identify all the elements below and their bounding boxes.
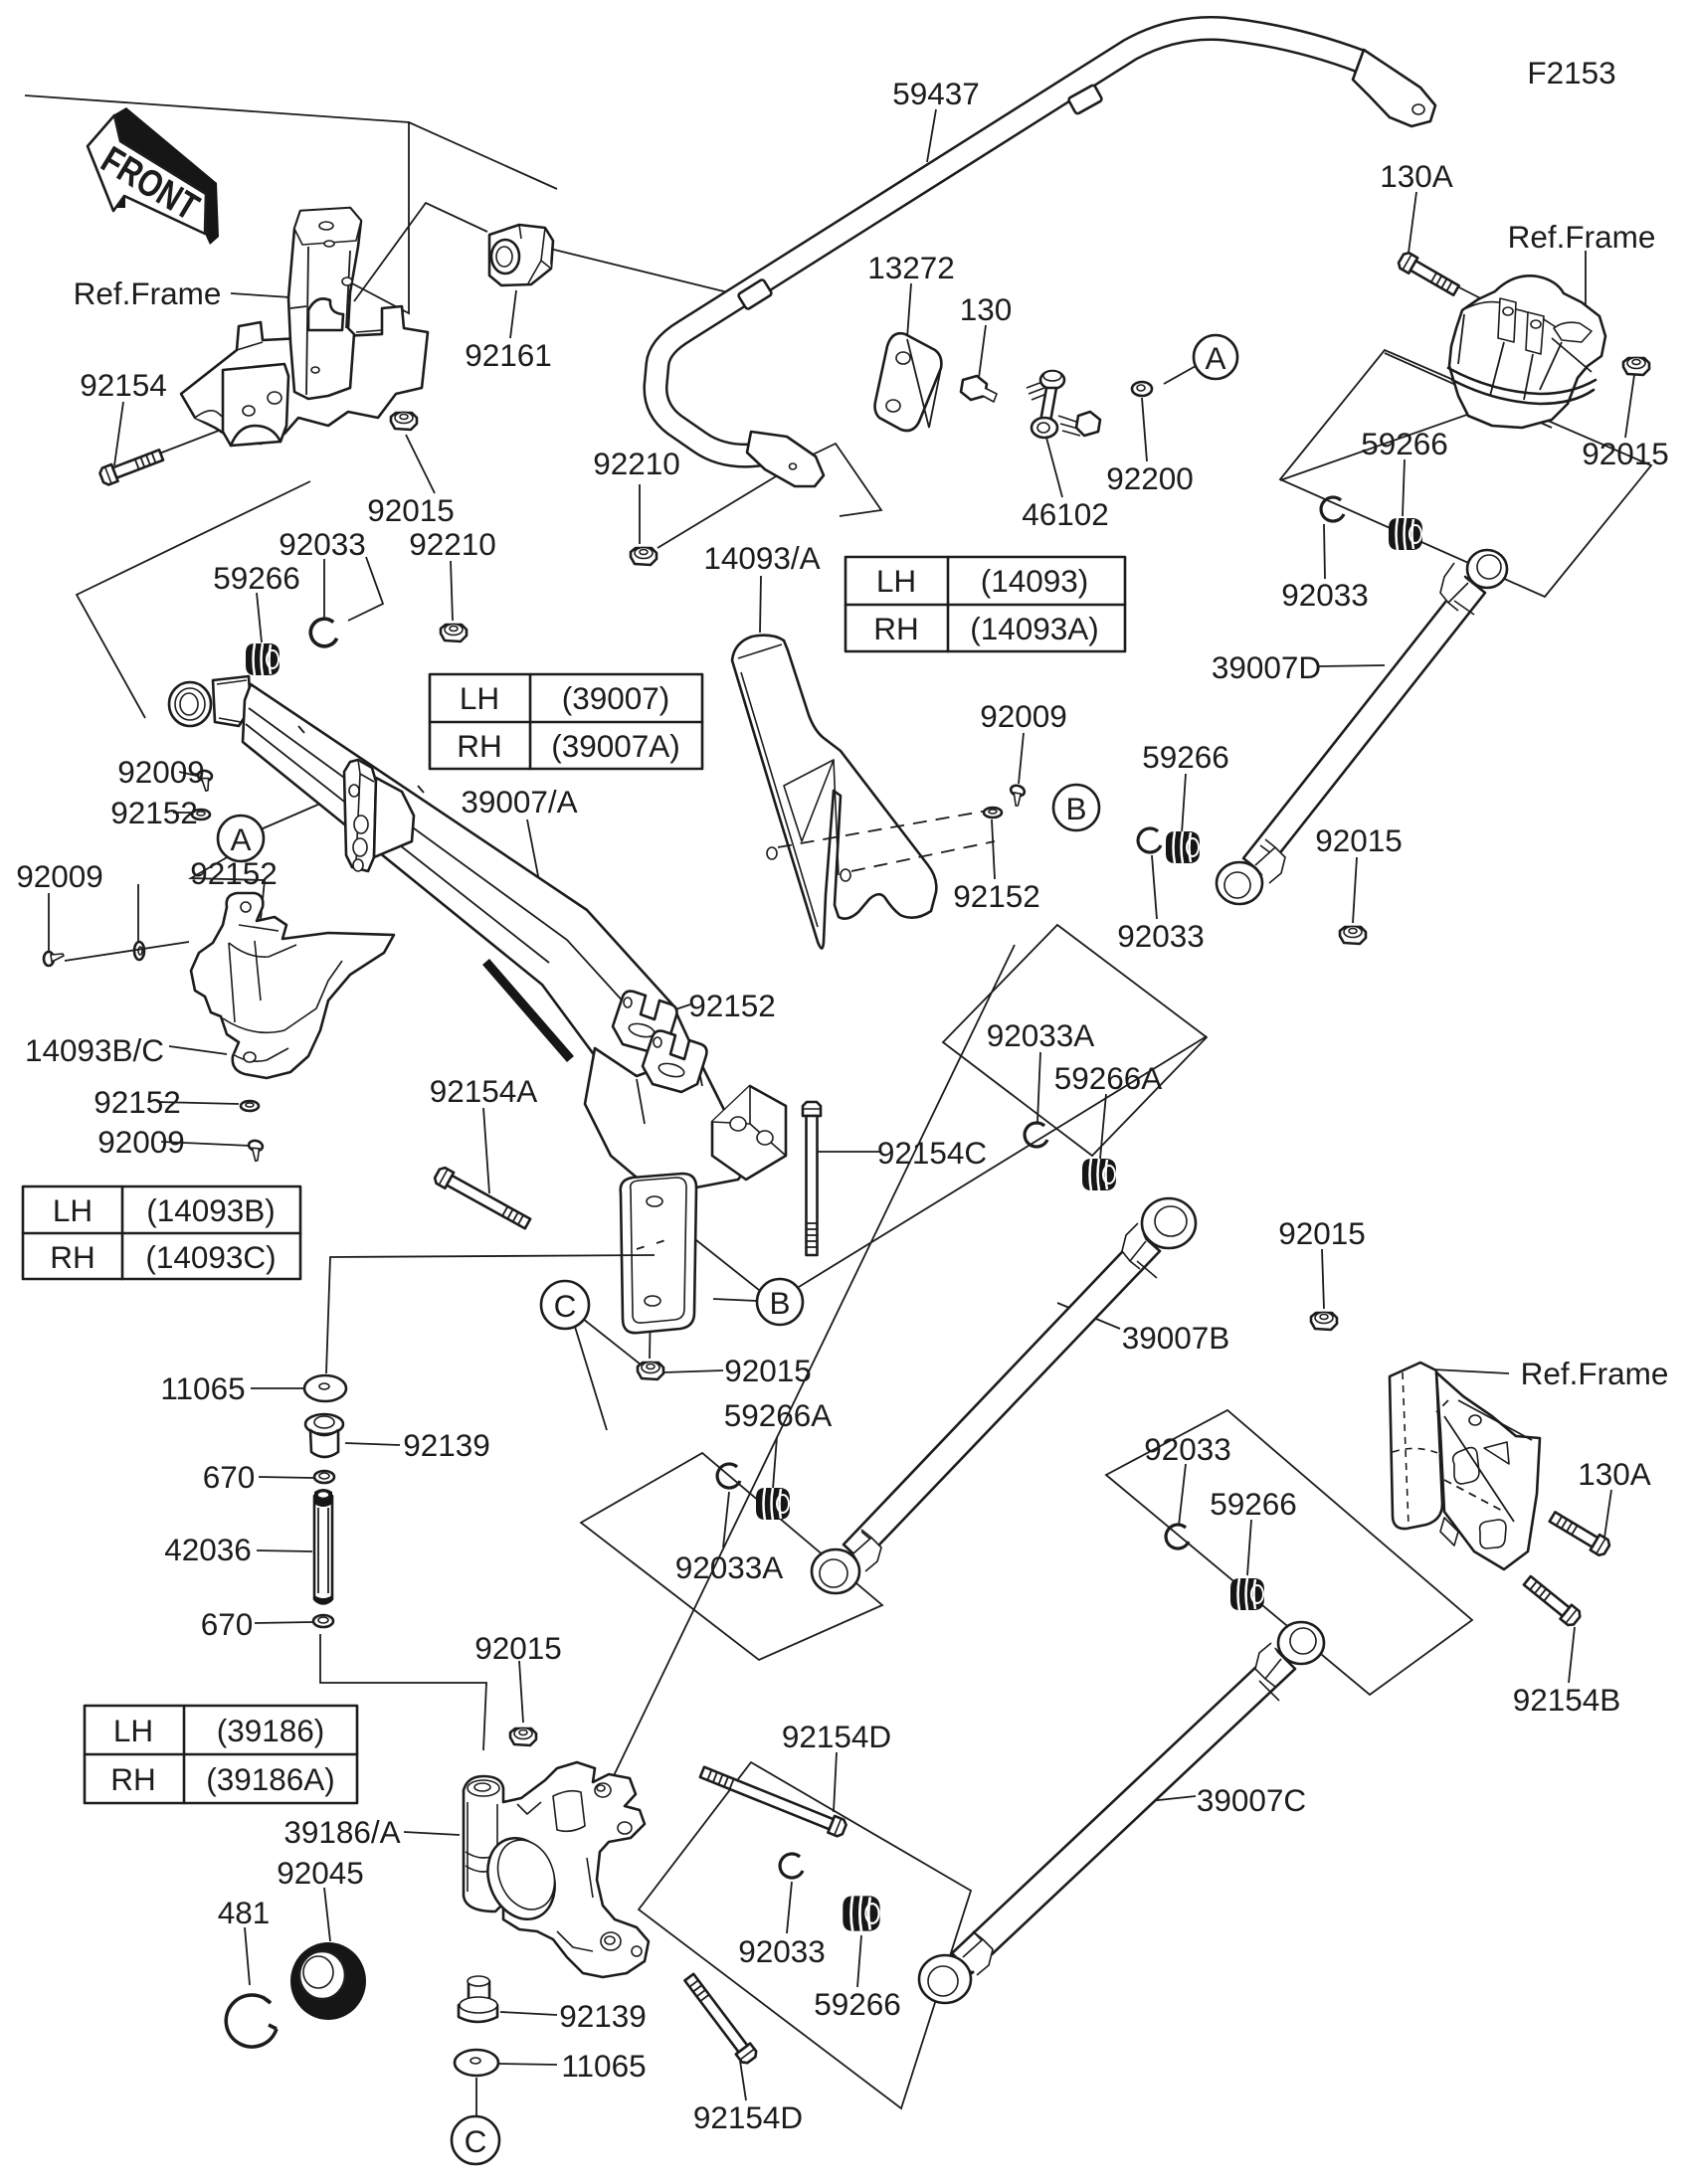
svg-text:39007D: 39007D xyxy=(1212,649,1321,685)
svg-text:(14093B): (14093B) xyxy=(146,1192,276,1228)
svg-text:Ref.Frame: Ref.Frame xyxy=(74,275,222,311)
svg-text:92152: 92152 xyxy=(953,878,1040,914)
svg-text:(14093C): (14093C) xyxy=(145,1239,276,1275)
svg-text:C: C xyxy=(554,1288,577,1324)
svg-text:92033: 92033 xyxy=(279,526,366,562)
svg-text:59266: 59266 xyxy=(1210,1486,1297,1522)
svg-text:(14093): (14093) xyxy=(981,563,1089,599)
svg-text:92152: 92152 xyxy=(94,1084,181,1120)
svg-text:42036: 42036 xyxy=(164,1532,252,1567)
svg-text:92161: 92161 xyxy=(465,337,552,373)
svg-text:F2153: F2153 xyxy=(1527,55,1615,91)
svg-text:11065: 11065 xyxy=(561,2048,646,2084)
svg-text:13272: 13272 xyxy=(867,250,955,285)
svg-text:LH: LH xyxy=(460,680,499,716)
svg-text:Ref.Frame: Ref.Frame xyxy=(1521,1356,1669,1391)
svg-text:92033: 92033 xyxy=(738,1933,826,1969)
svg-text:59266: 59266 xyxy=(1142,739,1229,775)
svg-text:92154B: 92154B xyxy=(1513,1682,1621,1718)
svg-text:59266A: 59266A xyxy=(1054,1060,1163,1096)
svg-text:LH: LH xyxy=(53,1192,93,1228)
svg-text:59266: 59266 xyxy=(213,560,300,596)
svg-text:92015: 92015 xyxy=(367,492,455,528)
svg-text:59266A: 59266A xyxy=(724,1397,833,1433)
svg-text:59437: 59437 xyxy=(892,76,980,111)
svg-text:C: C xyxy=(465,2123,487,2159)
svg-text:130: 130 xyxy=(960,291,1013,327)
svg-text:59266: 59266 xyxy=(814,1986,901,2022)
svg-text:(39007A): (39007A) xyxy=(551,728,680,764)
svg-text:92152: 92152 xyxy=(110,795,198,830)
svg-text:92033A: 92033A xyxy=(675,1549,784,1585)
svg-text:481: 481 xyxy=(218,1895,271,1930)
svg-text:92009: 92009 xyxy=(980,698,1067,734)
svg-text:11065: 11065 xyxy=(160,1370,245,1406)
svg-text:RH: RH xyxy=(873,611,919,646)
svg-text:(39186A): (39186A) xyxy=(206,1761,335,1797)
svg-text:B: B xyxy=(769,1285,790,1321)
svg-text:LH: LH xyxy=(113,1713,153,1748)
svg-text:LH: LH xyxy=(876,563,916,599)
svg-text:Ref.Frame: Ref.Frame xyxy=(1508,219,1656,255)
svg-text:39007C: 39007C xyxy=(1197,1782,1306,1818)
svg-text:RH: RH xyxy=(457,728,502,764)
svg-text:39007B: 39007B xyxy=(1122,1320,1230,1356)
svg-text:14093/A: 14093/A xyxy=(703,540,820,576)
svg-text:92154C: 92154C xyxy=(877,1135,987,1171)
svg-text:130A: 130A xyxy=(1578,1456,1651,1492)
svg-text:92015: 92015 xyxy=(724,1353,812,1388)
svg-text:92154D: 92154D xyxy=(693,2099,803,2135)
svg-text:92210: 92210 xyxy=(409,526,496,562)
svg-text:46102: 46102 xyxy=(1022,496,1109,532)
svg-text:A: A xyxy=(230,821,251,857)
svg-text:92152: 92152 xyxy=(688,988,776,1023)
svg-text:A: A xyxy=(1205,340,1225,376)
svg-text:92033: 92033 xyxy=(1117,918,1205,954)
svg-text:(39186): (39186) xyxy=(217,1713,325,1748)
svg-text:92033A: 92033A xyxy=(987,1017,1095,1053)
svg-text:(14093A): (14093A) xyxy=(970,611,1099,646)
svg-text:92015: 92015 xyxy=(474,1630,562,1666)
svg-text:92033: 92033 xyxy=(1281,577,1369,613)
svg-text:92015: 92015 xyxy=(1315,822,1403,858)
svg-text:92154A: 92154A xyxy=(430,1073,538,1109)
svg-text:92045: 92045 xyxy=(277,1855,364,1891)
svg-text:RH: RH xyxy=(110,1761,156,1797)
svg-text:RH: RH xyxy=(50,1239,95,1275)
svg-text:(39007): (39007) xyxy=(562,680,670,716)
svg-text:92015: 92015 xyxy=(1278,1215,1366,1251)
svg-text:92139: 92139 xyxy=(559,1998,647,2034)
svg-text:92200: 92200 xyxy=(1106,460,1194,496)
svg-text:92033: 92033 xyxy=(1144,1431,1231,1467)
svg-text:130A: 130A xyxy=(1380,158,1453,194)
svg-text:B: B xyxy=(1065,791,1086,826)
svg-text:14093B/C: 14093B/C xyxy=(25,1032,164,1068)
svg-text:92009: 92009 xyxy=(16,858,103,894)
svg-text:39186/A: 39186/A xyxy=(283,1814,400,1850)
svg-text:92152: 92152 xyxy=(190,855,278,891)
svg-text:92139: 92139 xyxy=(403,1427,490,1463)
svg-text:59266: 59266 xyxy=(1361,426,1448,461)
svg-text:92210: 92210 xyxy=(593,446,680,481)
svg-text:92015: 92015 xyxy=(1582,436,1669,471)
svg-text:92009: 92009 xyxy=(97,1124,185,1160)
svg-text:92154D: 92154D xyxy=(782,1719,891,1754)
svg-text:92009: 92009 xyxy=(117,754,205,790)
svg-text:39007/A: 39007/A xyxy=(461,784,577,819)
svg-text:670: 670 xyxy=(203,1459,256,1495)
svg-text:670: 670 xyxy=(201,1606,254,1642)
svg-text:92154: 92154 xyxy=(80,367,167,403)
